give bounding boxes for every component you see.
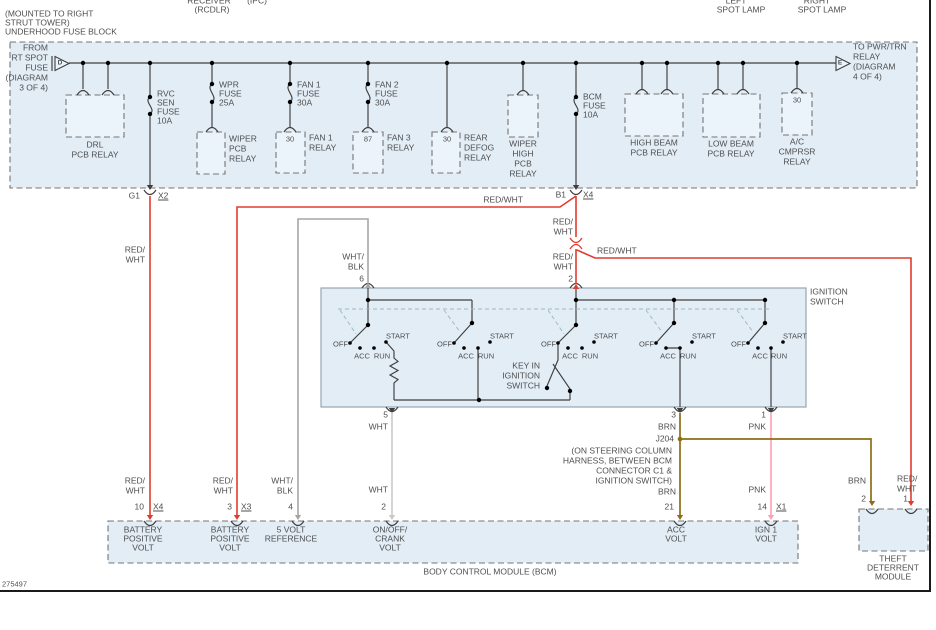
wire-label-redwht-bat2-1: RED/ (213, 477, 233, 486)
ign-s3-start: START (594, 332, 618, 341)
ignition-title-1: IGNITION (810, 288, 848, 297)
bcm-bat1-3: VOLT (132, 544, 154, 553)
bcm-pin-3: 3 (227, 503, 232, 512)
ign-s4-off: OFF (639, 340, 654, 349)
relay-wiper-pcb-2: PCB (229, 145, 246, 154)
bcm-pin-14: 14 (758, 503, 767, 512)
ign-s2-acc: ACC (458, 352, 474, 361)
relay-low-beam-box (703, 94, 760, 137)
wire-label-redwht-pin2-1: RED/ (553, 253, 573, 262)
bcm-ign1-2: VOLT (755, 535, 777, 544)
relay-drl-box (66, 95, 124, 137)
wire-label-redwht-branch: RED/WHT (597, 247, 637, 256)
wire-label-wht-upper: WHT (369, 423, 388, 432)
wire-label-redwht-g1-1: RED/ (125, 246, 145, 255)
wire-label-redwht-bat1-1: RED/ (125, 477, 145, 486)
bcm-bat2-3: VOLT (219, 544, 241, 553)
wire-label-brn-branch: BRN (848, 477, 866, 486)
relay-defog-1: REAR (464, 134, 488, 143)
offpage-e-letter: E (838, 59, 842, 68)
bcm-conn-x1: X1 (776, 503, 786, 512)
wire-label-pnk-upper: PNK (749, 423, 766, 432)
entry-line-1: FROM (23, 44, 48, 53)
wiring-diagram-page: { "header":{"m1":"(MOUNTED TO RIGHT","m2… (0, 0, 936, 630)
relay-ac-2: CMPRSR (779, 148, 816, 157)
ign-s3-run: RUN (582, 352, 598, 361)
key-in-ignition-2: IGNITION (502, 372, 540, 381)
conn-b1: B1 (556, 191, 566, 200)
fuse-fan2-3: 30A (375, 99, 390, 108)
ign-pin-2: 2 (568, 275, 573, 284)
bcm-pin-4: 4 (288, 503, 293, 512)
ign-s4-run: RUN (680, 352, 696, 361)
relay-drl-2: PCB RELAY (71, 151, 118, 160)
conn-x4: X4 (583, 191, 593, 200)
terminal-30-defog: 30 (443, 135, 451, 144)
relay-low-beam-1: LOW BEAM (708, 140, 754, 149)
ign-s5-run: RUN (771, 352, 787, 361)
theft-module-box (859, 509, 928, 551)
exit-line-3: (DIAGRAM (853, 63, 896, 72)
relay-drl-1: DRL (86, 141, 103, 150)
bcm-pin-10: 10 (135, 503, 144, 512)
wire-label-whtblk-2: BLK (348, 263, 364, 272)
ign-s2-start: START (490, 332, 514, 341)
j204-note-1: (ON STEERING COLUMN (571, 447, 672, 456)
entry-line-2: RT SPOT (11, 54, 48, 63)
ign-s3-off: OFF (541, 340, 556, 349)
relay-high-beam-2: PCB RELAY (630, 149, 677, 158)
page-border-right (929, 0, 931, 592)
ign-s5-off: OFF (731, 340, 746, 349)
entry-line-5: 3 OF 4) (19, 84, 48, 93)
ign-s2-run: RUN (478, 352, 494, 361)
tdm-pin-1: 1 (903, 495, 908, 504)
tdm-pin-2: 2 (861, 495, 866, 504)
j204-note-2: HARNESS, BETWEEN BCM (563, 457, 672, 466)
ign-s5-acc: ACC (752, 352, 768, 361)
relay-high-beam-box (625, 94, 683, 136)
ign-s1-acc: ACC (354, 352, 370, 361)
wire-label-brn-upper: BRN (658, 423, 676, 432)
bcm-ref-2: REFERENCE (265, 535, 317, 544)
ign-s2-off: OFF (437, 340, 452, 349)
relay-low-beam-2: PCB RELAY (707, 150, 754, 159)
ign-s1-off: OFF (333, 340, 348, 349)
label-rcdlr: (RCDLR) (195, 6, 230, 15)
terminal-30-fan1: 30 (286, 135, 294, 144)
exit-line-1: TO PWR/TRN (853, 43, 907, 52)
relay-wiper-pcb-3: RELAY (229, 155, 256, 164)
relay-defog-3: RELAY (464, 154, 491, 163)
fuse-fan1-3: 30A (297, 99, 312, 108)
ignition-title-2: SWITCH (810, 298, 844, 307)
wire-label-redwht-tdm-2: WHT (897, 485, 916, 494)
fuse-wpr-3: 25A (219, 99, 234, 108)
tdm-title-3: MODULE (875, 573, 911, 582)
ign-pin-3: 3 (671, 411, 676, 420)
splice-j204-label: J204 (656, 435, 674, 444)
label-left-spot-2: SPOT LAMP (717, 6, 766, 15)
wire-label-redwht-horiz: RED/WHT (483, 196, 523, 205)
relay-wiper-high-2: HIGH (512, 150, 533, 159)
doc-number: 275497 (2, 580, 27, 589)
ign-s1-run: RUN (374, 352, 390, 361)
label-right-spot-2: SPOT LAMP (798, 6, 847, 15)
terminal-30-ac: 30 (793, 96, 801, 105)
j204-note-3: CONNECTOR C1 & (596, 467, 672, 476)
bcm-conn-x3: X3 (241, 503, 251, 512)
entry-line-4: (DIAGRAM (6, 74, 49, 83)
note-mounted-3: UNDERHOOD FUSE BLOCK (5, 28, 117, 37)
ign-pin-5: 5 (383, 411, 388, 420)
conn-x2: X2 (158, 192, 168, 201)
wire-label-redwht-pin2-2: WHT (554, 263, 573, 272)
exit-line-2: RELAY (853, 53, 880, 62)
relay-high-beam-1: HIGH BEAM (630, 139, 678, 148)
fuse-block-box (10, 42, 917, 188)
wire-label-whtblk-low-1: WHT/ (271, 477, 293, 486)
page-border-bottom (0, 590, 931, 592)
wire-label-redwht-g1-2: WHT (126, 256, 145, 265)
j204-note-4: IGNITION SWITCH) (596, 477, 673, 486)
relay-fan3-1: FAN 3 (387, 134, 411, 143)
relay-wiper-high-box (508, 95, 538, 137)
ign-s1-start: START (386, 332, 410, 341)
relay-wiper-high-3: PCB (514, 160, 531, 169)
ign-s3-acc: ACC (562, 352, 578, 361)
relay-ac-1: A/C (790, 138, 804, 147)
relay-wiper-pcb-1: WIPER (229, 135, 257, 144)
exit-line-4: 4 OF 4) (853, 73, 882, 82)
relay-ac-3: RELAY (783, 158, 810, 167)
ign-s5-start: START (783, 332, 807, 341)
bcm-crank-3: VOLT (379, 544, 401, 553)
fuse-bcm-3: 10A (583, 111, 598, 120)
relay-fan1-2: RELAY (309, 144, 336, 153)
ign-s4-acc: ACC (660, 352, 676, 361)
bcm-conn-x4: X4 (153, 503, 163, 512)
splice-j204-dot (678, 437, 683, 442)
wire-label-whtblk-1: WHT/ (342, 253, 364, 262)
relay-fan3-2: RELAY (387, 144, 414, 153)
wire-label-brn-lower: BRN (658, 488, 676, 497)
relay-wiper-high-4: RELAY (509, 170, 536, 179)
bcm-title: BODY CONTROL MODULE (BCM) (423, 568, 556, 577)
wire-label-whtblk-low-2: BLK (277, 487, 293, 496)
ign-pin-6: 6 (359, 275, 364, 284)
bcm-pin-21: 21 (665, 503, 674, 512)
wire-label-pnk-lower: PNK (749, 486, 766, 495)
label-ipc: (IPC) (247, 0, 267, 6)
bcm-acc-2: VOLT (665, 535, 687, 544)
ign-s4-start: START (692, 332, 716, 341)
entry-line-3: FUSE (25, 64, 48, 73)
wire-label-redwht-upper-1: RED/ (553, 218, 573, 227)
ign-pin-1: 1 (761, 411, 766, 420)
bcm-pin-2: 2 (381, 503, 386, 512)
wire-label-redwht-bat1-2: WHT (126, 487, 145, 496)
relay-wiper-pcb-box (197, 132, 225, 174)
relay-defog-2: DEFOG (464, 144, 494, 153)
wire-label-redwht-upper-2: WHT (554, 228, 573, 237)
key-in-ignition-3: SWITCH (506, 382, 540, 391)
terminal-87-fan3: 87 (364, 135, 372, 144)
conn-g1: G1 (129, 192, 140, 201)
wire-label-redwht-bat2-2: WHT (214, 487, 233, 496)
relay-wiper-high-1: WIPER (509, 140, 537, 149)
wire-label-wht-lower: WHT (369, 486, 388, 495)
key-in-ignition-1: KEY IN (512, 362, 540, 371)
wire-label-redwht-tdm-1: RED/ (897, 475, 917, 484)
inline-connector-redwht (570, 238, 582, 249)
relay-fan1-1: FAN 1 (309, 134, 333, 143)
offpage-d-letter: D (58, 59, 63, 68)
fuse-rvc-4: 10A (157, 117, 172, 126)
